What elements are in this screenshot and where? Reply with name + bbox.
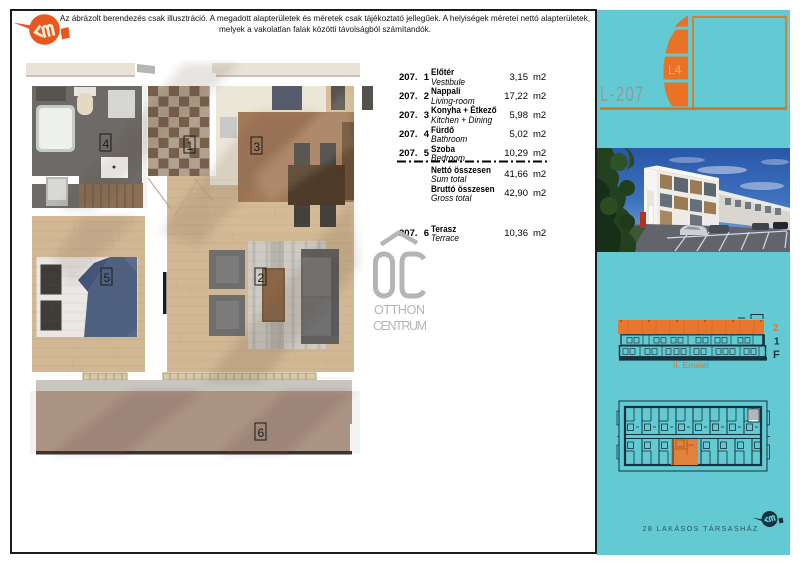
svg-text:28 LAKÁSOS TÁRSASHÁZ: 28 LAKÁSOS TÁRSASHÁZ [643, 524, 759, 533]
svg-text:II. Emelet: II. Emelet [673, 360, 710, 370]
svg-text:6: 6 [258, 426, 265, 440]
svg-text:F: F [773, 349, 780, 361]
svg-text:2: 2 [773, 323, 779, 334]
svg-text:3: 3 [254, 140, 261, 154]
svg-text:OTTHON: OTTHON [374, 303, 425, 317]
svg-text:1: 1 [187, 139, 194, 153]
svg-text:2: 2 [258, 271, 265, 285]
svg-text:CENTRUM: CENTRUM [373, 319, 427, 333]
svg-text:5: 5 [104, 271, 111, 285]
svg-text:L4: L4 [668, 63, 682, 77]
svg-text:4: 4 [103, 137, 110, 151]
svg-text:1: 1 [774, 337, 780, 348]
svg-text:L-207: L-207 [600, 82, 643, 105]
